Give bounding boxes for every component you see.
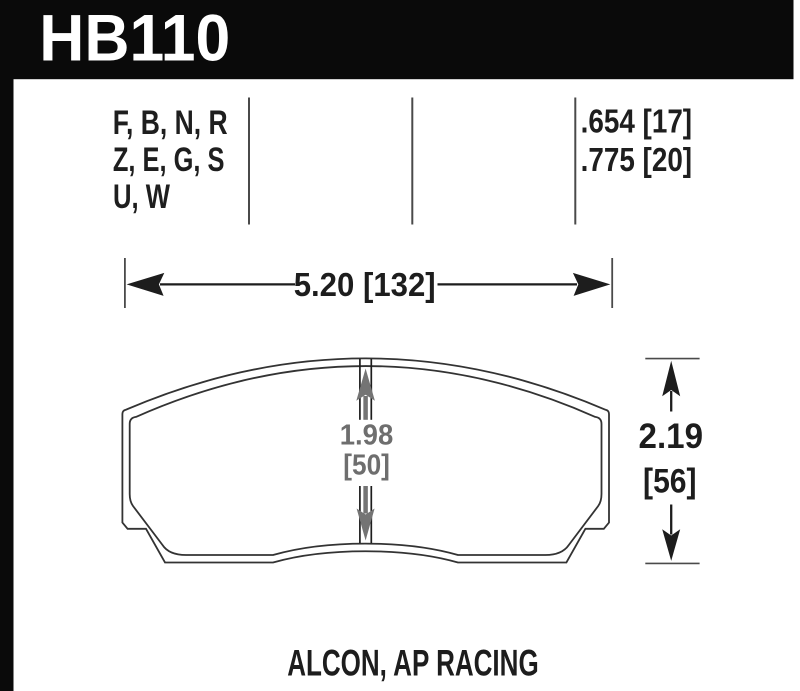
svg-text:Z, E, G, S: Z, E, G, S <box>113 141 225 179</box>
svg-text:U, W: U, W <box>113 178 170 216</box>
svg-text:.775 [20]: .775 [20] <box>581 142 693 179</box>
svg-text:ALCON, AP RACING: ALCON, AP RACING <box>287 642 539 684</box>
svg-text:5.20 [132]: 5.20 [132] <box>294 267 436 304</box>
svg-text:2.19: 2.19 <box>639 417 704 456</box>
svg-text:HB110: HB110 <box>39 2 230 75</box>
svg-text:[56]: [56] <box>643 463 697 501</box>
svg-text:[50]: [50] <box>343 450 390 482</box>
svg-text:.654 [17]: .654 [17] <box>581 104 693 141</box>
svg-text:1.98: 1.98 <box>340 419 394 451</box>
svg-text:F, B, N, R: F, B, N, R <box>113 104 228 142</box>
